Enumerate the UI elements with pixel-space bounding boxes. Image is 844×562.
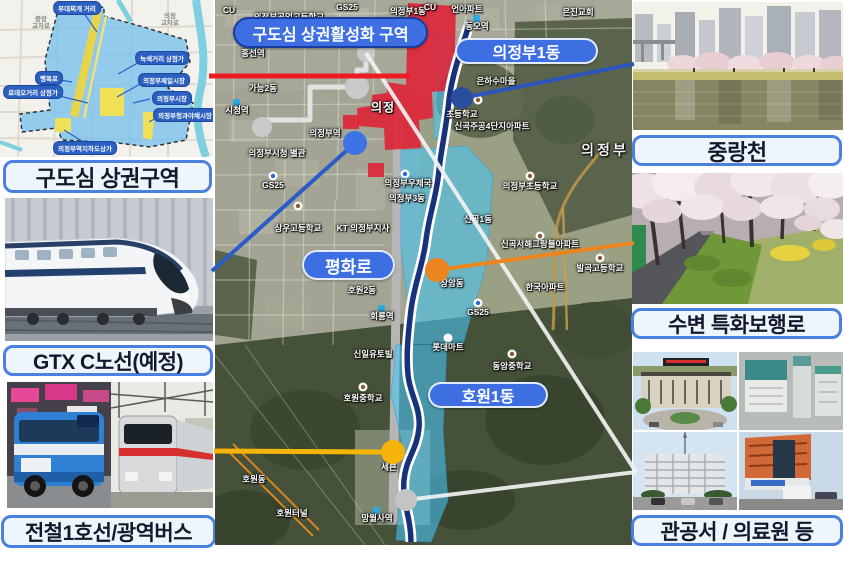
line1-train <box>119 416 213 494</box>
caption-old-downtown-text: 구도심 상권구역 <box>36 161 180 193</box>
walkway-photo-image <box>632 173 843 304</box>
diagram-market-block-1 <box>100 88 124 116</box>
embankment-grass <box>633 72 843 80</box>
pyeonghwa-road-band <box>393 112 398 520</box>
caption-transit: 전철1호선/광역버스 <box>1 515 216 548</box>
platform-edge <box>111 492 213 508</box>
public-buildings-image <box>633 352 843 510</box>
satellite-map-panel: CU의정부공업고등학교GS25의정부1동CU언아파트동오역은진교회흥선역가능2동… <box>215 0 632 545</box>
caption-old-downtown: 구도심 상권구역 <box>3 160 212 193</box>
caption-gtx: GTX C노선(예정) <box>3 345 213 376</box>
transit-photos-image <box>7 382 213 508</box>
caption-stream: 중랑천 <box>632 135 842 166</box>
pill-uijeongbu1dong-text: 의정부1동 <box>493 39 561 63</box>
transit-photos-panel <box>7 382 213 508</box>
caption-public-text: 관공서 / 의료원 등 <box>660 516 813 546</box>
caption-public: 관공서 / 의료원 등 <box>631 515 843 546</box>
caption-gtx-text: GTX C노선(예정) <box>33 346 183 376</box>
public-photo-panel <box>633 352 843 510</box>
headlight <box>182 293 190 299</box>
caption-transit-text: 전철1호선/광역버스 <box>25 517 192 547</box>
pill-activation-zone: 구도심 상권활성화 구역 <box>233 17 428 48</box>
stream-photo-panel <box>633 2 843 130</box>
pill-pyeonghwaro-text: 평화로 <box>325 253 372 278</box>
pill-howon1dong-text: 호원1동 <box>461 383 514 407</box>
caption-walkway: 수변 특화보행로 <box>631 308 842 339</box>
city-bus <box>14 412 104 497</box>
pill-howon1dong: 호원1동 <box>428 382 548 408</box>
forsythia <box>770 245 810 261</box>
embankment-path <box>633 69 843 72</box>
district-map-panel: 부대찌개 거리녹색거리 상점가행복로로데오거리 상점가의정부제일시장의정부시장의… <box>0 0 213 157</box>
diagram-market-block-2 <box>55 118 71 132</box>
walkway-photo-panel <box>632 173 843 304</box>
rail-bridge <box>633 40 675 44</box>
infographic-slide: 부대찌개 거리녹색거리 상점가행복로로데오거리 상점가의정부제일시장의정부시장의… <box>0 0 844 562</box>
satellite-map-image <box>215 0 632 545</box>
under-skirt <box>5 308 157 316</box>
pill-activation-zone-text: 구도심 상권활성화 구역 <box>252 21 408 45</box>
district-map-image <box>0 0 213 157</box>
gtx-photo-panel <box>5 198 213 341</box>
stream-photo-image <box>633 2 843 130</box>
caption-walkway-text: 수변 특화보행로 <box>668 309 805 339</box>
caption-stream-text: 중랑천 <box>707 135 766 167</box>
pill-pyeonghwaro: 평화로 <box>302 250 395 280</box>
pill-uijeongbu1dong: 의정부1동 <box>455 38 598 64</box>
gtx-train-image <box>5 198 213 341</box>
